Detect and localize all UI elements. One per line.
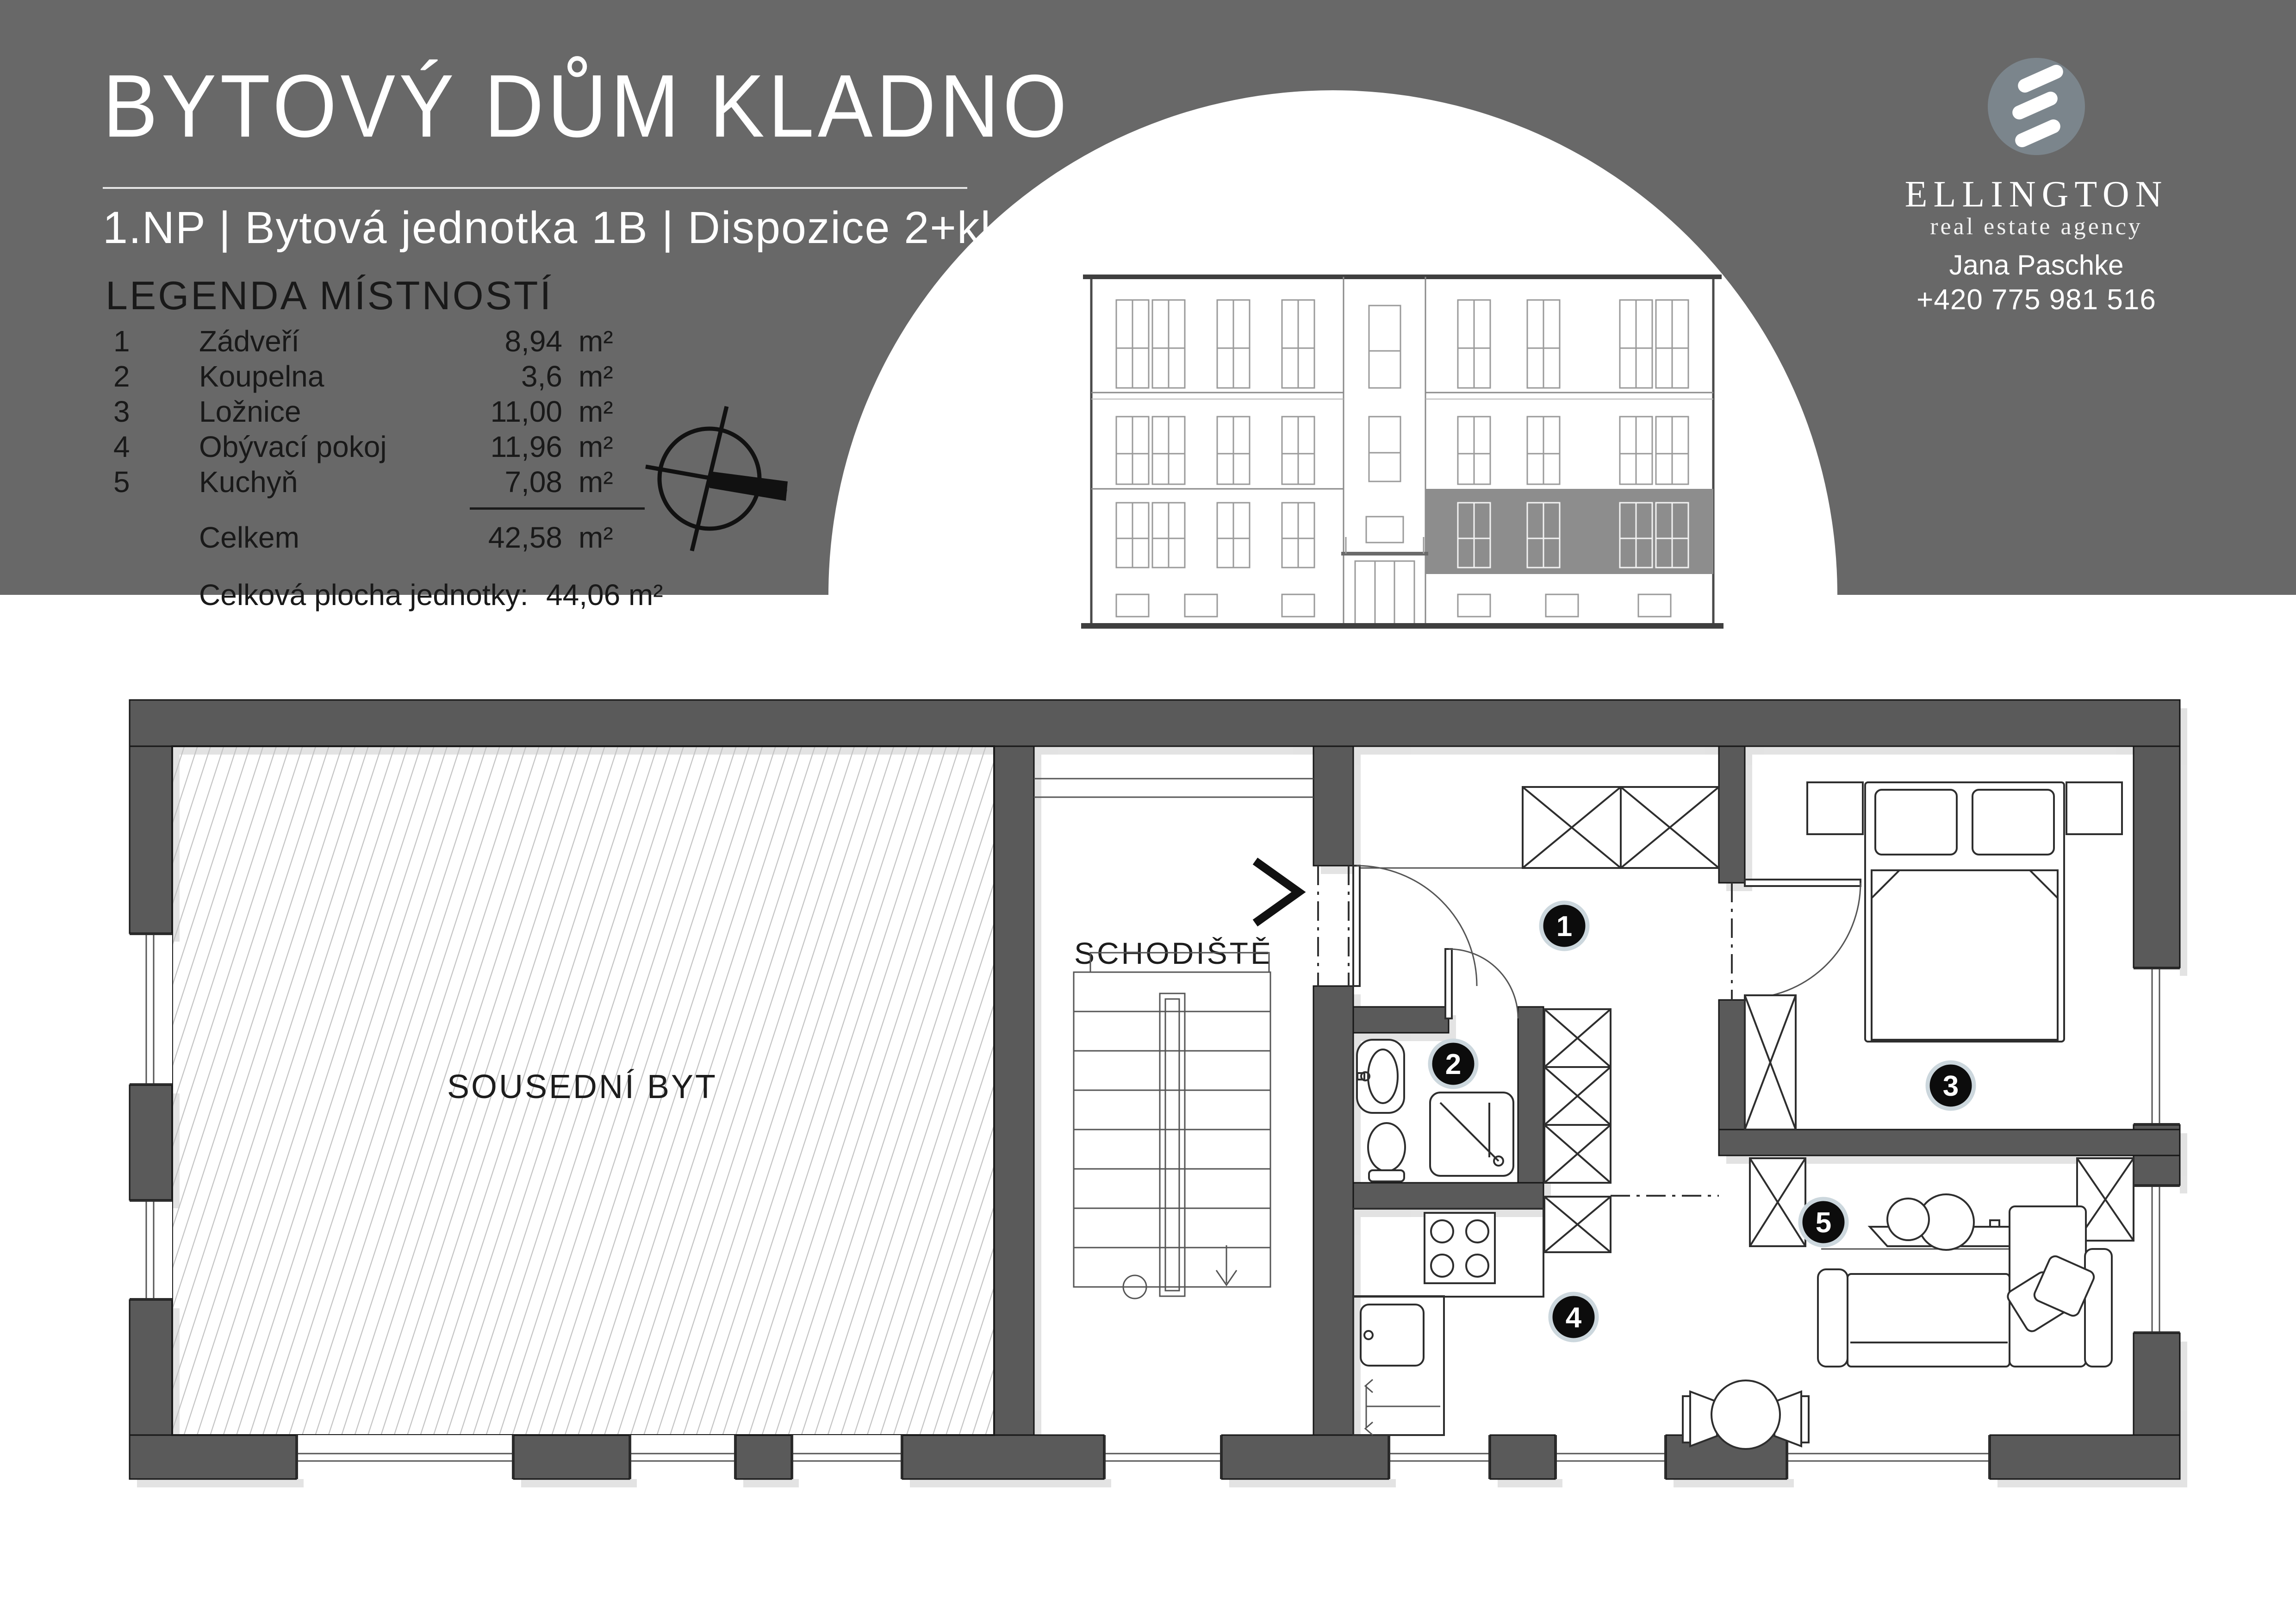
nightstand-left [1807, 782, 1863, 834]
entrance-chevron-icon [1255, 861, 1299, 923]
badge-3: 3 [1943, 1070, 1959, 1102]
bed-icon [1865, 782, 2064, 1042]
entrance-door [1318, 866, 1477, 986]
bedroom-wardrobe [1745, 995, 1796, 1130]
bathroom-door [1445, 949, 1518, 1018]
sink-icon [1357, 1040, 1404, 1113]
hall-closet-column [1544, 1009, 1611, 1183]
neighbor-flat-label: SOUSEDNÍ BYT [447, 1068, 717, 1105]
badge-2: 2 [1445, 1049, 1461, 1080]
bedroom-door [1732, 880, 1860, 1000]
toilet-icon [1368, 1123, 1405, 1181]
hall-wardrobe [1523, 787, 1719, 868]
dining-set [1683, 1380, 1809, 1449]
highlighted-unit-1b [1425, 489, 1713, 574]
stair-down-arrow [1216, 1245, 1237, 1285]
brochure-page: BYTOVÝ DŮM KLADNO 1.NP | Bytová jednotka… [0, 0, 2296, 1617]
north-arrow-icon [646, 406, 788, 551]
side-table-small [1887, 1199, 1929, 1240]
shower-icon [1430, 1093, 1513, 1176]
building-elevation [1081, 277, 1724, 626]
nightstand-right [2066, 782, 2122, 834]
badge-5: 5 [1816, 1207, 1831, 1239]
badge-1: 1 [1556, 911, 1572, 943]
staircase: SCHODIŠTĚ [1034, 779, 1313, 1299]
drawing-canvas: SOUSEDNÍ BYT [0, 0, 2296, 1617]
dining-table [1711, 1380, 1780, 1449]
badge-4: 4 [1566, 1302, 1582, 1334]
appliance-icon [1365, 1380, 1440, 1435]
kitchen-sink-icon [1361, 1305, 1424, 1366]
floor-plan: SOUSEDNÍ BYT [130, 700, 2187, 1487]
